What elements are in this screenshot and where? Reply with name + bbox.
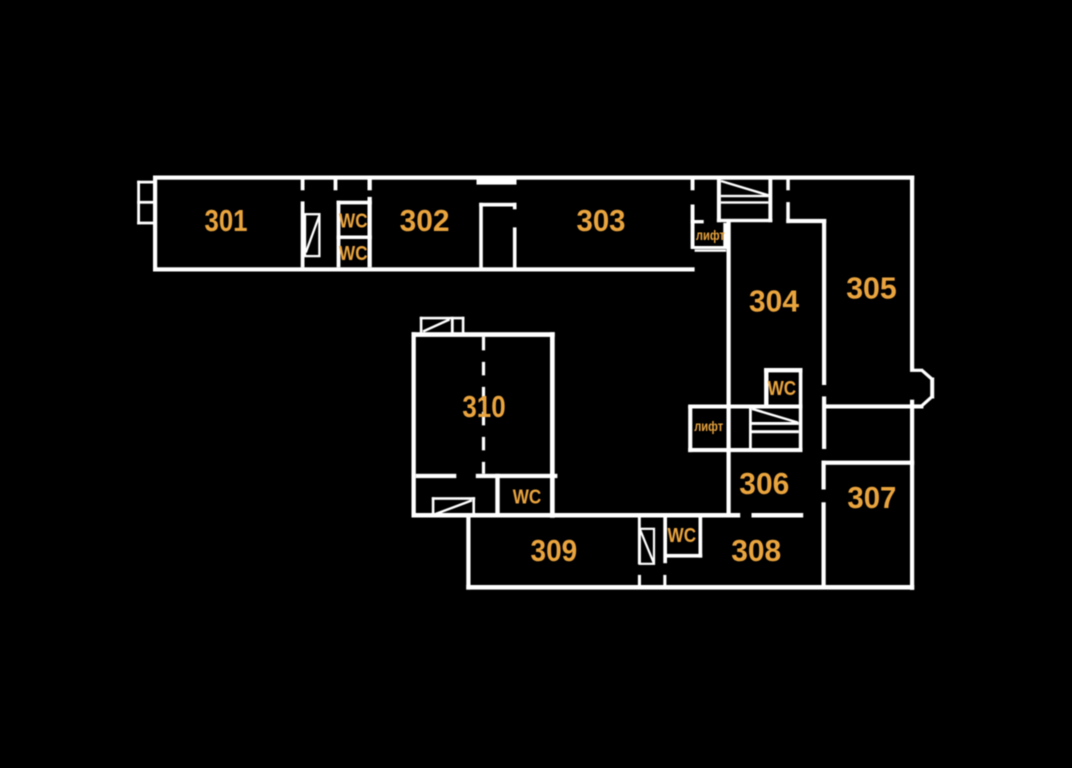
svg-text:301: 301 — [205, 203, 248, 238]
svg-text:310: 310 — [462, 389, 505, 424]
svg-text:305: 305 — [846, 270, 897, 305]
svg-text:WC: WC — [513, 485, 542, 508]
svg-text:306: 306 — [739, 466, 789, 501]
svg-text:304: 304 — [749, 284, 800, 319]
svg-text:303: 303 — [577, 203, 626, 238]
svg-text:WC: WC — [339, 242, 368, 265]
svg-text:WC: WC — [668, 524, 697, 547]
svg-text:лифт: лифт — [694, 419, 723, 434]
svg-text:WC: WC — [339, 210, 368, 233]
svg-text:лифт: лифт — [696, 228, 725, 243]
svg-text:WC: WC — [768, 377, 797, 400]
svg-text:302: 302 — [400, 203, 450, 238]
svg-text:308: 308 — [731, 533, 781, 568]
svg-text:307: 307 — [847, 480, 896, 515]
svg-text:309: 309 — [531, 533, 578, 568]
